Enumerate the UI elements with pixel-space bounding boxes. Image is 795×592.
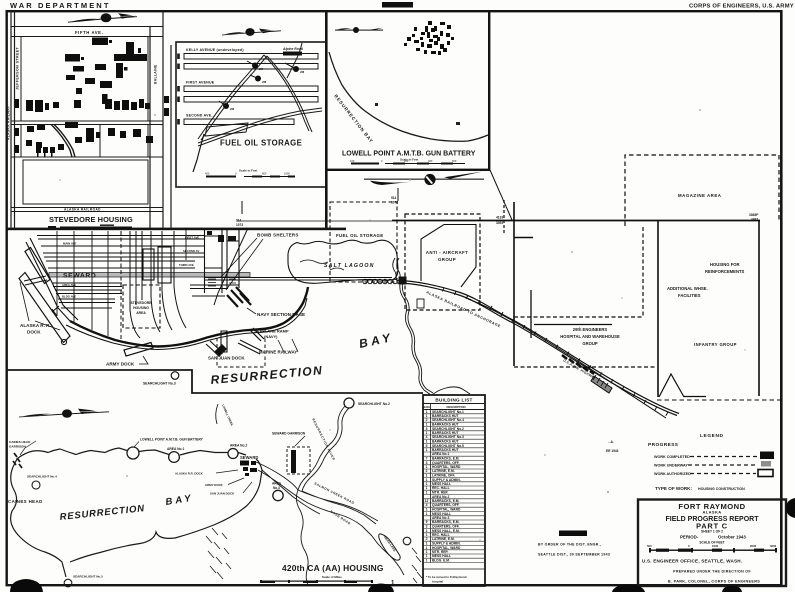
svg-text:SEAPLANE RAMP: SEAPLANE RAMP: [254, 329, 289, 334]
svg-text:2M: 2M: [262, 80, 267, 84]
svg-text:GROUP: GROUP: [582, 341, 598, 346]
svg-text:ALASKA RAILWAY: ALASKA RAILWAY: [7, 105, 11, 140]
svg-text:BALLAINE: BALLAINE: [154, 64, 158, 84]
svg-text:ALASKA RAILROAD: ALASKA RAILROAD: [64, 208, 101, 212]
svg-text:REINFORCEMENTS: REINFORCEMENTS: [705, 269, 745, 274]
svg-text:PERIOD-: PERIOD-: [680, 535, 699, 540]
svg-text:No.3: No.3: [273, 486, 280, 490]
svg-text:FIRST AVENUE: FIRST AVENUE: [186, 81, 215, 85]
svg-text:BOMB SHELTERS: BOMB SHELTERS: [257, 233, 299, 238]
svg-text:Scale in Feet: Scale in Feet: [400, 158, 418, 162]
svg-text:ANTI - AIRCRAFT: ANTI - AIRCRAFT: [426, 250, 468, 255]
svg-text:BLDG: BLDG: [423, 405, 430, 409]
svg-text:500: 500: [647, 544, 652, 548]
svg-text:CORPS OF ENGINEERS, U.S. ARMY: CORPS OF ENGINEERS, U.S. ARMY: [689, 4, 794, 10]
svg-text:STEVEDORE HOUSING: STEVEDORE HOUSING: [49, 215, 133, 224]
svg-text:KELLY AVENUE (undeveloped): KELLY AVENUE (undeveloped): [186, 48, 244, 52]
svg-text:3368P: 3368P: [749, 213, 759, 217]
svg-text:CAINES HEAD: CAINES HEAD: [8, 499, 43, 504]
svg-text:SALT LAGOON: SALT LAGOON: [324, 263, 375, 269]
svg-text:GARRISON: GARRISON: [9, 445, 26, 449]
svg-text:SECOND AV: SECOND AV: [183, 249, 199, 253]
svg-text:3000: 3000: [770, 544, 777, 548]
svg-text:FIFTH AVE.: FIFTH AVE.: [75, 30, 103, 35]
svg-text:PREPARED UNDER THE DIRECTION O: PREPARED UNDER THE DIRECTION OF: [673, 570, 751, 574]
svg-text:600: 600: [452, 159, 457, 163]
svg-text:800: 800: [262, 172, 267, 176]
svg-text:2M: 2M: [259, 67, 264, 71]
svg-text:1600: 1600: [284, 172, 290, 176]
svg-text:HOUSING: HOUSING: [133, 306, 149, 310]
svg-text:WAR DEPARTMENT: WAR DEPARTMENT: [10, 1, 111, 10]
svg-text:TYPE OF WORK:: TYPE OF WORK:: [655, 486, 692, 491]
svg-text:AREA No.1: AREA No.1: [167, 447, 184, 451]
svg-text:STEVEDORE: STEVEDORE: [131, 301, 153, 305]
svg-text:FIRST AVE: FIRST AVE: [185, 236, 199, 240]
svg-text:LOWELL POINT A.M.T.B. GUN: LOWELL POINT A.M.T.B. GUN BATTERY: [140, 438, 204, 442]
svg-text:ADDITIONAL WHSE.: ADDITIONAL WHSE.: [667, 286, 708, 291]
svg-text:WORK UNDERWAY: WORK UNDERWAY: [654, 464, 688, 468]
svg-text:NAVY SECTION BASE: NAVY SECTION BASE: [257, 312, 305, 317]
svg-text:1073: 1073: [391, 201, 398, 205]
svg-text:JEFFERSON STREET: JEFFERSON STREET: [16, 46, 20, 90]
svg-text:Scale in Feet: Scale in Feet: [239, 169, 257, 173]
svg-text:400: 400: [205, 172, 210, 176]
svg-text:ALASKA: ALASKA: [702, 510, 721, 515]
svg-text:LEGEND: LEGEND: [700, 433, 724, 439]
svg-text:SAN JUAN DOCK: SAN JUAN DOCK: [208, 356, 245, 361]
svg-text:SEARCHLIGHT No.2: SEARCHLIGHT No.2: [358, 402, 390, 406]
svg-text:DESCRIPTION: DESCRIPTION: [446, 405, 465, 409]
svg-text:1: 1: [426, 448, 428, 452]
svg-text:GROUP: GROUP: [438, 257, 456, 262]
svg-text:INFANTRY GROUP: INFANTRY GROUP: [694, 342, 737, 347]
svg-text:hospital: hospital: [432, 580, 443, 584]
svg-text:CAINES HEAD: CAINES HEAD: [9, 440, 31, 444]
svg-text:THIRD AVE: THIRD AVE: [179, 263, 194, 267]
svg-text:SHEET 1 OF 2: SHEET 1 OF 2: [701, 530, 723, 534]
svg-text:914: 914: [391, 196, 397, 200]
svg-text:1073: 1073: [236, 223, 243, 227]
svg-text:(NAVY): (NAVY): [264, 334, 278, 339]
svg-text:HOSPITAL AND WAREHOUSE: HOSPITAL AND WAREHOUSE: [560, 334, 620, 339]
svg-text:HOUSING FOR: HOUSING FOR: [710, 262, 740, 267]
svg-text:DOCK: DOCK: [27, 330, 41, 335]
svg-text:ARMY DOCK: ARMY DOCK: [205, 483, 224, 487]
svg-text:FUEL OIL STORAGE: FUEL OIL STORAGE: [336, 233, 384, 238]
svg-text:29th ENGINEERS: 29th ENGINEERS: [573, 327, 608, 332]
svg-text:MAIN AVE: MAIN AVE: [63, 242, 76, 246]
svg-text:SEWARD: SEWARD: [240, 455, 258, 460]
svg-text:LOWELL POINT A.M.T.B. GUN BATT: LOWELL POINT A.M.T.B. GUN BATTERY: [342, 151, 476, 158]
svg-text:SEARCHLIGHT No.3: SEARCHLIGHT No.3: [143, 382, 176, 386]
svg-text:ARMY DOCK: ARMY DOCK: [106, 362, 135, 367]
svg-text:AREA No.2: AREA No.2: [230, 444, 247, 448]
svg-text:1: 1: [426, 559, 428, 563]
svg-text:420th CA (AA) HOUSING: 420th CA (AA) HOUSING: [282, 563, 384, 573]
svg-text:3494: 3494: [496, 221, 503, 225]
svg-text:1: 1: [426, 491, 428, 495]
svg-text:U.S. ENGINEER OFFICE, SEATTL: U.S. ENGINEER OFFICE, SEATTLE, WASH.: [642, 559, 742, 564]
svg-text:B. PARK, COLONEL, CORPS OF E: B. PARK, COLONEL, CORPS OF ENGINEERS: [668, 580, 760, 584]
svg-text:BLDG AVE: BLDG AVE: [62, 295, 76, 299]
svg-text:2M: 2M: [230, 107, 235, 111]
svg-text:914: 914: [236, 219, 242, 223]
svg-text:WORK COMPLETED: WORK COMPLETED: [654, 455, 690, 459]
svg-text:FUEL OIL STORAGE: FUEL OIL STORAGE: [220, 139, 302, 148]
svg-text:HOUSING CONSTRUCTION: HOUSING CONSTRUCTION: [698, 487, 745, 491]
svg-text:WORK AUTHORIZED: WORK AUTHORIZED: [654, 472, 691, 476]
svg-text:400: 400: [428, 159, 433, 163]
svg-text:100: 100: [350, 159, 355, 163]
svg-text:AREA: AREA: [136, 311, 146, 315]
svg-text:SEATTLE DIST., 30 SEPTEMBER: SEATTLE DIST., 30 SEPTEMBER 1943: [538, 553, 610, 557]
svg-text:2M: 2M: [300, 70, 305, 74]
svg-text:...A.: ...A.: [608, 440, 614, 444]
svg-text:4133: 4133: [496, 216, 503, 220]
svg-text:2000: 2000: [750, 544, 757, 548]
svg-text:SEARCHLIGHT No.4: SEARCHLIGHT No.4: [27, 475, 57, 479]
svg-text:SEARCHLIGHT No.5: SEARCHLIGHT No.5: [73, 575, 103, 579]
svg-text:SEWARD: SEWARD: [63, 273, 96, 280]
svg-text:SAN JUAN DOCK: SAN JUAN DOCK: [210, 492, 235, 496]
svg-text:MAGAZINE AREA: MAGAZINE AREA: [678, 193, 722, 198]
svg-text:* To be moved to Ft.Raymon: * To be moved to Ft.Raymond: [426, 575, 467, 579]
svg-text:1000: 1000: [712, 544, 719, 548]
svg-text:BY ORDER OF THE DIST. ENGR.,: BY ORDER OF THE DIST. ENGR.,: [538, 543, 601, 547]
svg-text:AREA AVE: AREA AVE: [62, 283, 76, 287]
svg-text:BLDG. E.M.: BLDG. E.M.: [432, 559, 450, 563]
svg-text:1: 1: [426, 512, 428, 516]
svg-text:FACILITIES: FACILITIES: [678, 293, 701, 298]
svg-text:ER 1943: ER 1943: [606, 449, 619, 453]
svg-text:PROGRESS: PROGRESS: [648, 442, 679, 448]
svg-text:200: 200: [404, 159, 409, 163]
svg-text:3487: 3487: [751, 218, 758, 222]
svg-text:BUILDING LIST: BUILDING LIST: [435, 398, 472, 403]
svg-text:ALASKA R.R. DOCK: ALASKA R.R. DOCK: [175, 472, 204, 476]
svg-text:ALASKA R. R.: ALASKA R. R.: [20, 323, 51, 328]
svg-text:SECOND AVE.: SECOND AVE.: [186, 114, 213, 118]
svg-text:October 1943: October 1943: [718, 535, 746, 540]
svg-text:Scale of Miles: Scale of Miles: [322, 575, 342, 579]
svg-text:SEWARD GARRISON: SEWARD GARRISON: [272, 432, 306, 436]
